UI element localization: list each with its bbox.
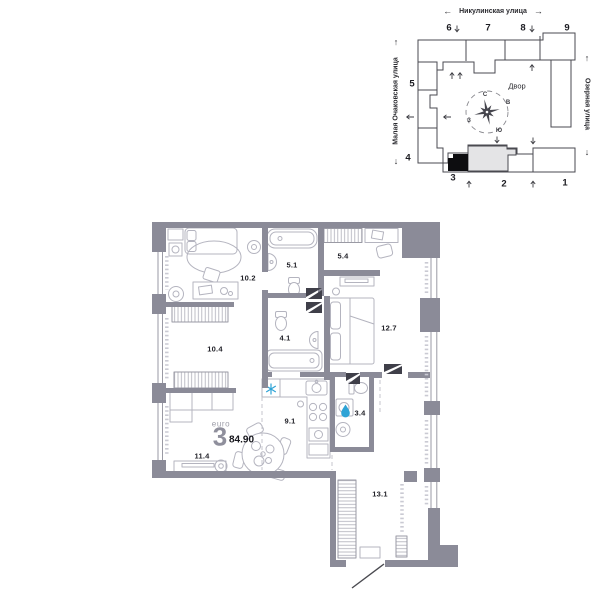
bed-double: [328, 288, 374, 364]
desk-chair: [193, 267, 238, 299]
wardrobe: [338, 480, 356, 558]
building-number-3: 3: [450, 173, 455, 184]
doormat: [360, 547, 380, 558]
room-area-bedroom-1: 10.2: [240, 274, 255, 283]
arrow-up-icon: ↑: [585, 53, 590, 63]
wardrobe: [172, 306, 228, 322]
room-area-kitchen: 9.1: [284, 417, 295, 426]
bathtub: [266, 350, 322, 371]
unit-rooms-count: 3: [213, 422, 227, 453]
room-area-bedroom-2: 12.7: [381, 324, 396, 333]
building-number-1: 1: [562, 178, 567, 189]
compass-west-label: З: [467, 118, 471, 124]
sink: [336, 423, 350, 437]
tv-stand: [174, 461, 226, 472]
building-number-5: 5: [409, 79, 414, 90]
bed-double: [168, 228, 241, 273]
building-number-9: 9: [564, 23, 569, 34]
bathtub: [267, 229, 317, 248]
building-number-6: 6: [446, 23, 451, 34]
site-plan-map: [407, 26, 575, 188]
room-area-living: 11.4: [195, 452, 210, 461]
toilet: [276, 312, 287, 331]
arrow-left-icon: ←: [443, 6, 452, 16]
street-name-left: Малая Очаковская улица: [393, 57, 400, 145]
room-area-wardrobe: 5.4: [337, 252, 348, 261]
building-number-8: 8: [520, 23, 525, 34]
arrow-up-icon: ↑: [394, 37, 399, 47]
floorplan-page: ← Никулинская улица → ↑ Малая Очаковская…: [0, 0, 600, 600]
room-area-corridor: 13.1: [372, 490, 387, 499]
desk-chair: [365, 229, 398, 259]
building-number-4: 4: [405, 153, 410, 164]
wardrobe: [174, 372, 228, 388]
street-name-top: ← Никулинская улица →: [443, 6, 543, 16]
room-area-hall: 4.1: [279, 334, 290, 343]
compass-north-label: С: [483, 92, 487, 98]
shoe-cabinet: [396, 536, 407, 557]
room-area-bathroom-2: 3.4: [354, 409, 365, 418]
room-area-bathroom-1: 5.1: [286, 261, 297, 270]
building-number-2: 2: [501, 179, 506, 190]
wardrobe: [320, 229, 362, 243]
street-name-right: Озерная улица: [584, 78, 591, 130]
sink: [268, 254, 277, 271]
arrow-down-icon: ↓: [585, 147, 590, 157]
entrance-door: [352, 564, 384, 588]
building-number-7: 7: [485, 23, 490, 34]
tv-stand: [340, 277, 374, 286]
floor-plan-drawing: [152, 222, 458, 588]
arrow-right-icon: →: [534, 6, 543, 16]
sofa: [170, 391, 233, 422]
unit-total-area: 84.90: [229, 435, 254, 446]
compass-east-label: В: [506, 100, 510, 106]
compass-south-label: Ю: [496, 128, 502, 134]
courtyard-label: Двор: [508, 82, 525, 91]
sink: [310, 332, 319, 349]
arrow-down-icon: ↓: [394, 156, 399, 166]
room-area-bedroom-3: 10.4: [207, 345, 222, 354]
